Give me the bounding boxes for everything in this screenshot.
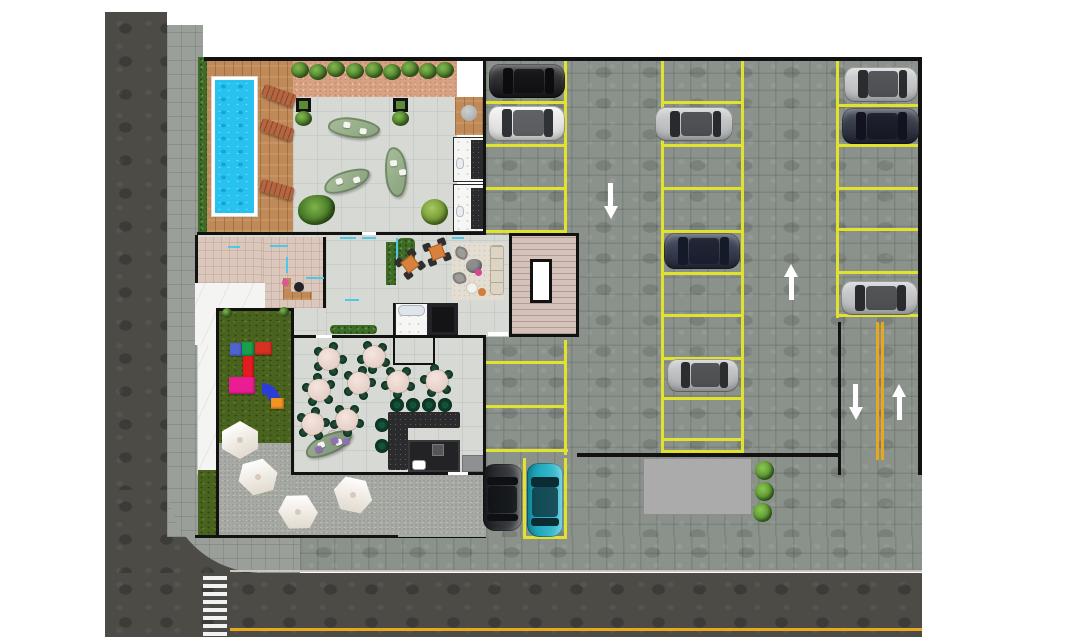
- road-yellow-line: [876, 322, 879, 460]
- parking-stall-line: [486, 187, 566, 190]
- hedge-bush: [291, 62, 309, 78]
- bar-stool: [376, 440, 388, 452]
- parking-stall-line: [661, 272, 744, 275]
- teal-sedan: [527, 463, 563, 537]
- restaurant-hedge: [330, 325, 377, 334]
- parking-stall-line: [486, 230, 566, 233]
- car-roof: [868, 71, 898, 96]
- umbrella-hub: [349, 491, 357, 499]
- restaurant-table: [342, 366, 376, 400]
- table-top: [308, 379, 330, 401]
- glass-wall-line: [362, 237, 376, 239]
- car-roof: [488, 486, 516, 513]
- car-roof: [691, 363, 720, 387]
- parking-stall-line: [661, 397, 744, 400]
- parking-stall-line: [486, 405, 566, 408]
- wall-segment: [195, 235, 198, 283]
- playground-equipment: [229, 377, 255, 394]
- restaurant-table: [330, 403, 364, 437]
- car-roof: [532, 487, 558, 517]
- landscape-bush: [755, 461, 774, 480]
- grass-bush: [279, 307, 289, 317]
- parking-stall-line: [836, 144, 920, 147]
- car-windshield: [681, 362, 690, 388]
- car-windshield: [545, 68, 553, 95]
- bar-stool: [376, 419, 388, 431]
- traffic-arrow-down: [849, 382, 863, 420]
- hedge-bush: [419, 63, 437, 79]
- kitchen-sink: [412, 460, 426, 470]
- restaurant-table: [296, 407, 330, 441]
- glass-wall-line: [452, 237, 464, 239]
- bar-stool: [423, 399, 435, 411]
- parking-stall-line: [836, 228, 920, 231]
- traffic-arrow-up: [784, 264, 798, 302]
- arrow-head: [604, 206, 618, 219]
- glass-wall-line: [228, 246, 240, 248]
- hedge-bush: [327, 61, 345, 77]
- wall-segment: [483, 337, 486, 475]
- umbrella-hub: [254, 473, 261, 480]
- restaurant-table: [420, 364, 454, 398]
- grass-bush: [222, 308, 232, 318]
- restaurant-table: [312, 342, 346, 376]
- wall-segment: [197, 232, 486, 235]
- parking-stall-line: [486, 361, 566, 364]
- glass-wall-line: [345, 299, 359, 301]
- car-windshield: [720, 362, 728, 388]
- silver-sedan: [841, 281, 918, 315]
- lounge-flowers: [475, 269, 482, 276]
- wall-segment: [433, 337, 435, 363]
- glass-wall-line: [340, 237, 356, 239]
- curb-line: [230, 570, 922, 572]
- parking-stall-line: [486, 144, 566, 147]
- elevator-shaft: [530, 259, 552, 303]
- parking-stall-line: [523, 458, 526, 538]
- navy-suv: [664, 233, 740, 269]
- car-windshield: [720, 237, 728, 265]
- table-top: [387, 371, 409, 393]
- terrace-planter: [296, 98, 311, 112]
- deck-round-table: [461, 105, 477, 121]
- parking-stall-line: [836, 104, 920, 107]
- silver-sedan: [655, 107, 733, 141]
- wall-segment: [918, 57, 922, 475]
- pool-water: [215, 80, 254, 213]
- outdoor-terrace-south: [294, 475, 486, 537]
- table-top: [400, 254, 420, 274]
- parking-stall-line: [661, 438, 744, 441]
- wall-segment: [577, 453, 838, 457]
- car-roof: [866, 286, 897, 311]
- parking-stall-line: [741, 58, 744, 453]
- lounge-side-table: [466, 282, 478, 294]
- arrow-stem: [789, 276, 794, 300]
- arrow-head: [849, 407, 863, 420]
- table-top: [336, 409, 358, 431]
- car-windshield: [858, 70, 868, 97]
- road-yellow-line: [230, 628, 922, 631]
- table-top: [426, 370, 448, 392]
- grass-strip: [198, 470, 216, 537]
- car-windshield: [531, 518, 559, 526]
- landscape-bush: [755, 482, 774, 501]
- hedge-bush: [365, 62, 383, 78]
- car-windshield: [670, 111, 680, 138]
- playground-equipment: [242, 342, 254, 356]
- hedge-bush: [383, 64, 401, 80]
- bar-counter-leg: [388, 412, 408, 470]
- restaurant-table: [302, 373, 336, 407]
- hedge-bush: [309, 64, 327, 80]
- office-chair: [294, 282, 304, 292]
- car-windshield: [856, 112, 866, 140]
- bar-stool: [407, 399, 419, 411]
- toilet: [456, 158, 464, 169]
- hedge-bush: [401, 61, 419, 77]
- road-yellow-line: [881, 322, 884, 460]
- parking-stall-line: [661, 144, 744, 147]
- traffic-arrow-down: [604, 181, 618, 219]
- black-suv: [483, 464, 522, 531]
- car-windshield: [487, 513, 517, 520]
- lounge-sofa: [490, 245, 504, 295]
- silver-sedan: [667, 359, 739, 392]
- bar-stool: [391, 399, 403, 411]
- wall-segment: [393, 303, 395, 365]
- playground-equipment: [243, 356, 254, 379]
- crosswalk: [203, 576, 227, 636]
- car-windshield: [678, 237, 688, 265]
- door-opening: [448, 472, 468, 475]
- planter-plant: [295, 111, 312, 126]
- reception-room: [197, 237, 263, 283]
- bar-stool: [439, 399, 451, 411]
- bathtub: [398, 305, 425, 316]
- navy-suv: [842, 108, 919, 144]
- hedge-bush: [346, 63, 364, 79]
- car-windshield: [544, 109, 552, 136]
- parking-stall-line: [661, 314, 744, 317]
- street-left: [105, 12, 167, 573]
- wall-segment: [204, 57, 922, 61]
- terrace-planter: [393, 98, 408, 112]
- wall-segment: [195, 535, 398, 538]
- parking-stall-line: [486, 449, 568, 452]
- glass-wall-line: [306, 277, 324, 279]
- site-plan-canvas: [0, 0, 1088, 640]
- glass-wall-line: [270, 245, 288, 247]
- wall-segment: [838, 322, 841, 475]
- bench-pillow: [390, 159, 398, 166]
- silver-sedan: [844, 67, 918, 102]
- wall-segment: [323, 237, 326, 308]
- car-windshield: [855, 285, 865, 312]
- bench-pillow: [335, 177, 344, 185]
- parking-stall-line: [836, 271, 920, 274]
- black-sedan: [489, 64, 565, 98]
- playground-equipment: [255, 342, 272, 355]
- loading-pad: [643, 458, 752, 515]
- car-windshield: [713, 111, 722, 138]
- office-plant: [282, 279, 289, 286]
- planter-plant: [392, 111, 409, 126]
- playground-equipment: [271, 398, 284, 409]
- restroom-counter: [471, 140, 483, 179]
- kitchen-appliance: [432, 444, 444, 456]
- table-top: [302, 413, 324, 435]
- toilet: [456, 206, 464, 217]
- elevator-lobby: [428, 303, 458, 336]
- car-roof: [689, 238, 719, 264]
- wall-segment: [291, 308, 294, 475]
- kitchen-cold-store: [462, 455, 484, 472]
- parking-stall-line: [836, 187, 920, 190]
- car-windshield: [897, 285, 905, 312]
- parking-stall-line: [661, 187, 744, 190]
- table-top: [318, 348, 340, 370]
- car-roof: [867, 113, 898, 139]
- hedge-bush: [436, 62, 454, 78]
- parking-stall-line: [486, 101, 566, 104]
- car-roof: [514, 69, 544, 94]
- arrow-stem: [854, 384, 859, 408]
- white-suv: [488, 106, 565, 141]
- umbrella-hub: [294, 508, 302, 516]
- table-top: [348, 372, 370, 394]
- bench-pillow: [359, 128, 367, 135]
- arrow-stem: [609, 183, 614, 207]
- door-opening: [488, 332, 508, 336]
- car-windshield: [898, 112, 906, 140]
- restaurant-table: [381, 365, 415, 399]
- parking-stall-line: [661, 101, 744, 104]
- lounge-pouf: [478, 288, 486, 296]
- sidewalk-band-bottom: [300, 537, 922, 570]
- car-roof: [513, 110, 544, 135]
- traffic-arrow-up: [892, 384, 906, 422]
- deck-edge-shrubs: [198, 57, 207, 232]
- glass-wall-line: [286, 257, 288, 273]
- wall-segment: [483, 60, 486, 235]
- bench-pillow: [343, 121, 351, 128]
- landscape-bush: [753, 503, 772, 522]
- car-windshield: [503, 68, 513, 95]
- terrace-tree: [421, 199, 448, 225]
- car-windshield: [531, 477, 559, 487]
- bench-pillow: [398, 169, 406, 176]
- parking-stall-line: [564, 340, 567, 455]
- door-opening: [316, 335, 332, 338]
- arrow-stem: [897, 396, 902, 420]
- marble-path: [198, 345, 216, 470]
- wall-segment: [216, 308, 219, 538]
- car-windshield: [502, 109, 512, 136]
- parking-stall-line: [564, 458, 567, 538]
- car-roof: [681, 112, 712, 137]
- car-windshield: [487, 476, 517, 485]
- door-opening: [362, 232, 376, 235]
- playground-equipment: [230, 343, 242, 356]
- restroom-counter: [471, 188, 483, 229]
- car-windshield: [899, 70, 907, 97]
- bench-pillow: [352, 176, 361, 184]
- umbrella-hub: [237, 437, 243, 443]
